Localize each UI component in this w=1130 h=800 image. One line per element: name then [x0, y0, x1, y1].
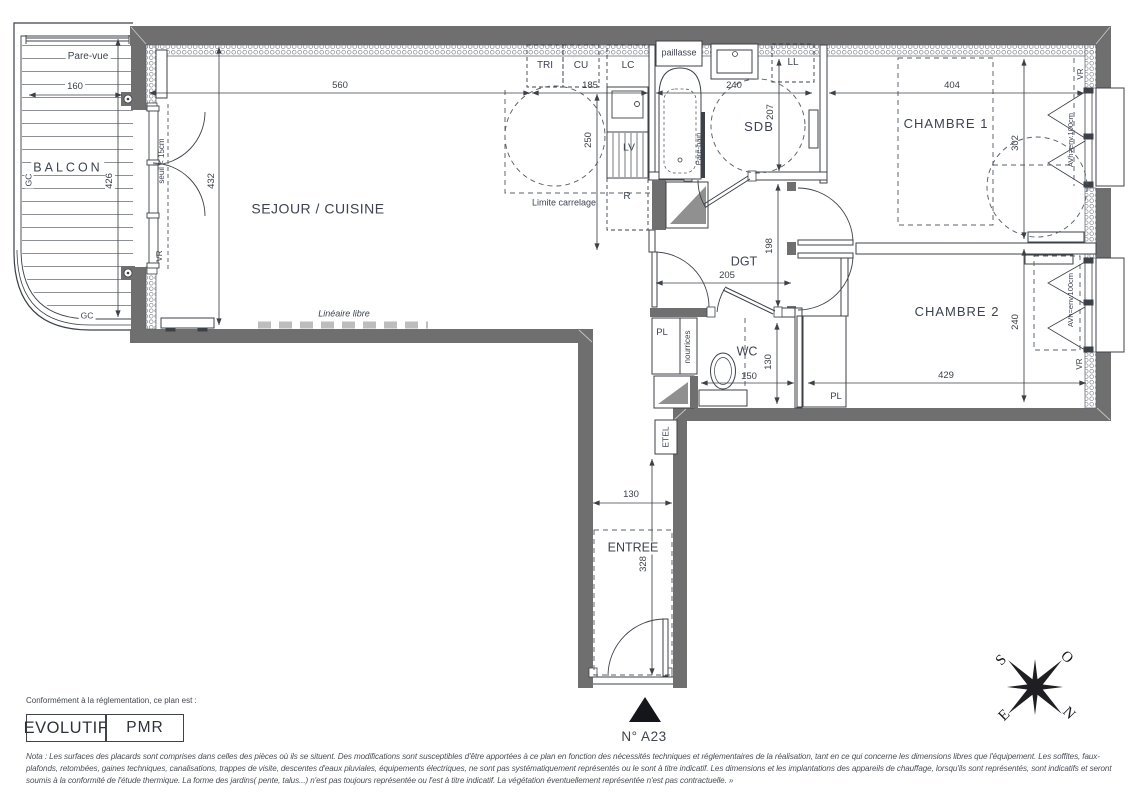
legend-pmr-label: PMR: [126, 719, 163, 737]
window-sill-label-bedroom2: AVh=env.100cm: [1067, 273, 1075, 327]
guardrail-label-left: GC: [25, 172, 34, 189]
dim-kitchen-depth: 250: [584, 132, 594, 148]
electrical-closet-label: ETEL: [662, 426, 671, 447]
closet-label-bedroom2: PL: [830, 392, 842, 402]
dim-entry-depth: 328: [639, 554, 649, 574]
room-label-living: SEJOUR / CUISINE: [251, 202, 384, 217]
toilet: [699, 353, 747, 406]
kitchen-lc-label: LC: [622, 61, 635, 72]
dim-living-width: 560: [332, 81, 348, 91]
bedroom1-window: [1048, 88, 1124, 187]
room-label-wc: WC: [737, 345, 758, 358]
washing-machine-label: LL: [787, 58, 798, 69]
dim-balcony-depth: 426: [105, 171, 115, 191]
counter-label: paillasse: [661, 48, 696, 57]
dim-bedroom1-width: 404: [944, 81, 960, 91]
room-label-entry: ENTREE: [606, 541, 661, 554]
dim-entry-width: 130: [623, 490, 639, 500]
dim-balcony-width: 160: [65, 82, 85, 92]
door-swings: [153, 112, 853, 676]
door-leaves: [593, 176, 853, 684]
bedroom2-window: [1048, 258, 1124, 352]
dim-bathroom-width: 240: [726, 81, 742, 91]
accessibility-circles: [505, 79, 1087, 237]
dim-bedroom2-depth: 240: [1011, 314, 1021, 330]
shutter-label-bedroom1: VR: [1077, 68, 1085, 79]
legend-evolutif-box: EVOLUTIF: [26, 714, 106, 742]
dim-bathroom-depth: 207: [766, 104, 776, 120]
shutter-label-bedroom2: VR: [1076, 358, 1084, 369]
wall-corner-joints: [131, 27, 1110, 420]
kitchen-lv-label: LV: [623, 142, 635, 153]
kitchen-cu-label: CU: [574, 61, 588, 72]
room-label-hallway: DGT: [731, 255, 757, 268]
legend-pmr-box: PMR: [106, 714, 184, 742]
unit-number: N° A23: [621, 730, 666, 744]
bath-screen-label: Pare-bain: [695, 133, 703, 166]
guardrail-label-bottom: GC: [79, 312, 96, 321]
entrance-marker-icon: [629, 697, 661, 722]
threshold-label: seuil < 15cm: [158, 138, 166, 183]
legend-caption: Conformément à la réglementation, ce pla…: [26, 696, 197, 705]
legend-evolutif-label: EVOLUTIF: [24, 719, 109, 738]
dim-hallway-width: 205: [719, 271, 735, 281]
kitchen-tri-label: TRI: [537, 61, 553, 72]
dim-kitchen-width: 185: [582, 81, 598, 91]
dim-living-depth: 432: [207, 173, 217, 189]
balcony-door: [147, 106, 159, 268]
dim-bedroom1-depth: 302: [1011, 135, 1021, 151]
window-sill-label-bedroom1: AVh=env.100cm: [1067, 113, 1075, 167]
free-linear-label: Linéaire libre: [318, 309, 370, 318]
shutter-label-balcony: VR: [156, 250, 164, 261]
balcony-screen-label: Pare-vue: [66, 52, 111, 63]
room-label-bedroom1: CHAMBRE 1: [904, 117, 989, 131]
closet-label-wc: PL: [656, 328, 668, 338]
dim-wc-width: 150: [741, 372, 757, 382]
nota-disclaimer: Nota : Les surfaces des placards sont co…: [26, 751, 1114, 787]
dim-bedroom2-width: 429: [938, 371, 954, 381]
floor-plan-page: Pare-vue 160 BALCON GC 426 GC SEJOUR / C…: [0, 0, 1130, 800]
tile-limit-label: Limite carrelage: [532, 198, 596, 207]
room-label-bathroom: SDB: [744, 120, 774, 134]
dimension-lines: [29, 39, 1086, 675]
dim-hallway-depth: 198: [765, 238, 775, 254]
kitchen-r-label: R: [623, 192, 630, 203]
room-label-balcony: BALCON: [31, 161, 104, 174]
room-label-bedroom2: CHAMBRE 2: [915, 305, 1000, 319]
dim-wc-depth: 130: [764, 354, 774, 370]
manifolds-label: nourrices: [684, 331, 692, 364]
compass-rose: [1007, 659, 1063, 715]
